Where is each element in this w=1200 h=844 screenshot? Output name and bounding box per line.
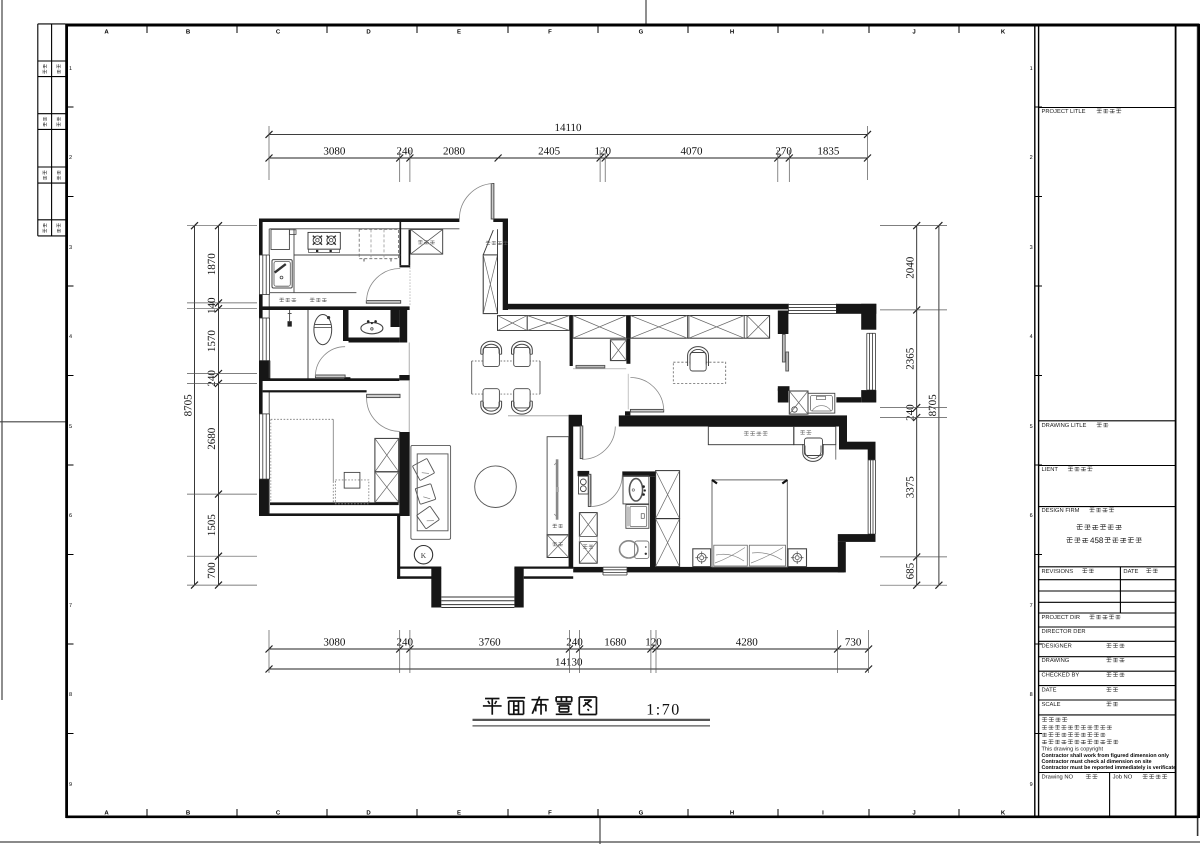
svg-text:K: K [1001,29,1006,36]
svg-text:240: 240 [905,404,917,421]
svg-text:2040: 2040 [905,256,917,279]
svg-text:120: 120 [645,637,662,649]
svg-text:A: A [104,810,109,817]
svg-text:DATE: DATE [1042,688,1057,694]
svg-text:C: C [276,29,281,36]
svg-text:3760: 3760 [479,637,502,649]
svg-text:F: F [548,810,552,817]
svg-text:3080: 3080 [323,637,346,649]
svg-text:685: 685 [905,562,917,579]
svg-text:SCALE: SCALE [1042,701,1061,708]
svg-text:1: 1 [1030,66,1033,72]
svg-text:J: J [912,810,915,817]
svg-text:240: 240 [397,146,414,158]
svg-text:J: J [912,29,915,36]
svg-text:1505: 1505 [206,514,218,537]
svg-text:LIENT: LIENT [1042,467,1059,473]
svg-text:14110: 14110 [554,122,582,134]
svg-text:14130: 14130 [555,657,583,669]
svg-text:120: 120 [594,146,611,158]
svg-text:CHECKED BY: CHECKED BY [1042,672,1080,679]
svg-text:G: G [639,29,644,36]
svg-text:H: H [730,29,734,36]
svg-text:DRAWING LITLE: DRAWING LITLE [1042,422,1087,429]
svg-text:K: K [1001,810,1006,817]
svg-text:4: 4 [1030,334,1033,340]
svg-text:7: 7 [1030,603,1033,609]
svg-text:3375: 3375 [905,476,917,499]
svg-text:2365: 2365 [905,347,917,370]
svg-text:1835: 1835 [817,146,840,158]
svg-text:DESIGN FIRM: DESIGN FIRM [1042,507,1080,514]
svg-text:DESIGNER: DESIGNER [1042,643,1072,650]
svg-text:140: 140 [206,297,218,314]
svg-text:2: 2 [1030,155,1033,161]
svg-text:Job NO: Job NO [1113,774,1133,781]
svg-text:4070: 4070 [681,146,704,158]
svg-text:4280: 4280 [736,637,759,649]
svg-text:DRAWING: DRAWING [1042,657,1070,664]
svg-text:Contractor must be reported im: Contractor must be reported immediately … [1042,765,1177,771]
svg-text:2: 2 [69,155,72,161]
svg-text:REVISIONS: REVISIONS [1042,568,1074,575]
svg-text:1: 1 [69,66,72,72]
svg-text:458: 458 [1090,536,1104,545]
svg-text:6: 6 [1030,513,1033,519]
svg-text:A: A [104,29,109,36]
svg-text:1:70: 1:70 [646,702,680,719]
svg-text:4: 4 [69,334,72,340]
svg-text:K: K [421,551,427,560]
svg-text:C: C [276,810,281,817]
svg-text:G: G [639,810,644,817]
svg-text:240: 240 [397,637,414,649]
svg-text:2405: 2405 [538,146,561,158]
svg-text:D: D [366,29,371,36]
svg-text:PROJECT DIR: PROJECT DIR [1042,614,1081,621]
svg-text:PROJECT LITLE: PROJECT LITLE [1042,108,1086,115]
svg-text:9: 9 [69,782,72,788]
svg-text:8705: 8705 [927,394,939,417]
svg-text:2080: 2080 [443,146,466,158]
svg-text:5: 5 [69,424,72,430]
svg-text:E: E [457,810,461,817]
svg-text:700: 700 [206,562,218,579]
svg-text:B: B [186,810,191,817]
svg-text:240: 240 [206,370,218,387]
svg-text:3080: 3080 [323,146,346,158]
svg-text:Drawing NO: Drawing NO [1042,774,1074,781]
svg-text:F: F [548,29,552,36]
svg-text:2680: 2680 [206,427,218,450]
svg-text:7: 7 [69,603,72,609]
svg-text:1870: 1870 [206,253,218,276]
svg-text:5: 5 [1030,424,1033,430]
svg-text:DATE: DATE [1123,569,1138,575]
svg-text:This drawing is copyright: This drawing is copyright [1042,746,1104,753]
svg-text:8705: 8705 [183,394,195,417]
svg-text:DIRECTOR DER: DIRECTOR DER [1042,628,1086,635]
svg-text:D: D [366,810,371,817]
svg-text:3: 3 [1030,245,1033,251]
svg-text:H: H [730,810,734,817]
svg-text:1570: 1570 [206,330,218,353]
svg-text:B: B [186,29,191,36]
svg-text:8: 8 [1030,692,1033,698]
svg-text:3: 3 [69,245,72,251]
svg-text:E: E [457,29,461,36]
svg-text:730: 730 [845,637,862,649]
svg-text:6: 6 [69,513,72,519]
svg-text:240: 240 [566,637,583,649]
svg-text:8: 8 [69,692,72,698]
svg-text:1680: 1680 [604,637,627,649]
svg-text:9: 9 [1030,782,1033,788]
